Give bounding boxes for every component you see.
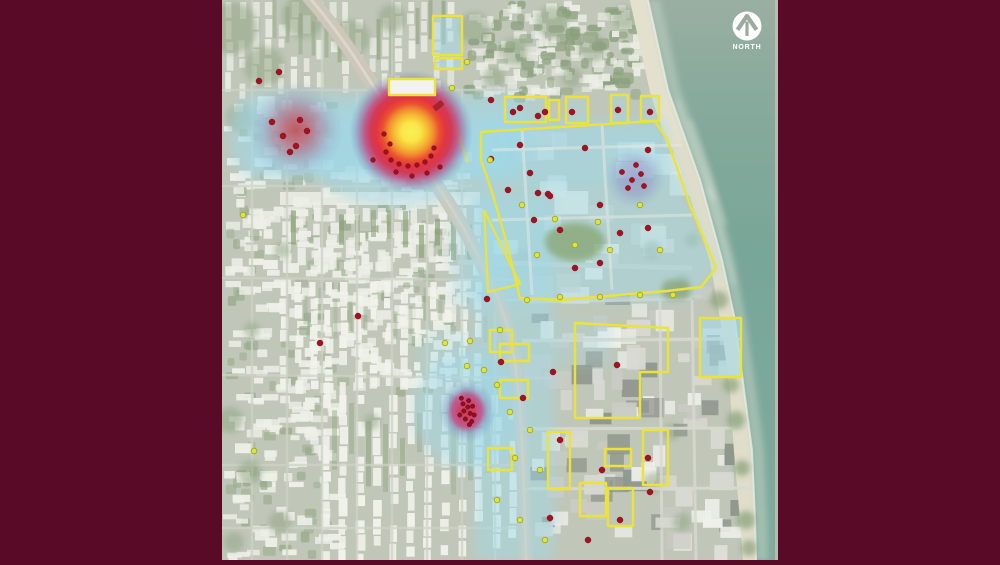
svg-text:NORTH: NORTH — [733, 44, 762, 51]
